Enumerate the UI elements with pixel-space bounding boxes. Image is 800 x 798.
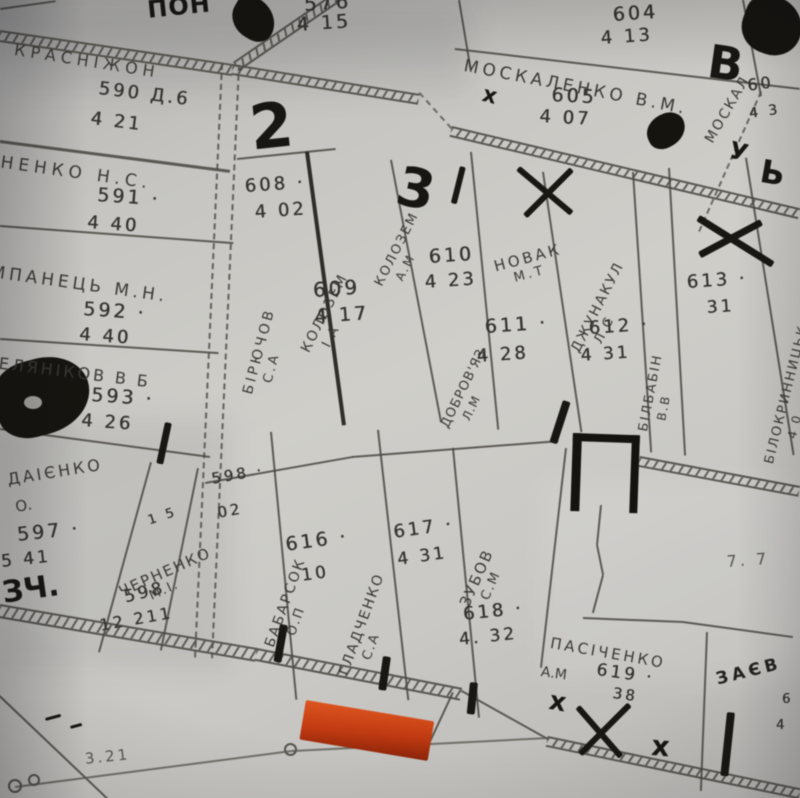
cadastral-map-photo: КРАСНІЖОН МОСКАЛЕНКО В.М. МОСКАЛ ДНЕНКО … bbox=[0, 0, 800, 798]
parcel-number: 605 bbox=[551, 84, 597, 108]
parcel-number: 597 · bbox=[16, 517, 81, 546]
parcel-number: 617 · bbox=[392, 514, 455, 543]
parcel-boundary-line bbox=[700, 632, 708, 791]
parcel-number: 591 · bbox=[96, 184, 161, 210]
parcel-number: 613 · bbox=[686, 268, 748, 293]
marker-p-symbol bbox=[570, 433, 640, 513]
parcel-number: 612 · bbox=[588, 314, 650, 339]
marker-scribble: ЗЧ. bbox=[0, 568, 61, 611]
parcel-number: 611 · bbox=[484, 312, 549, 338]
parcel-boundary-line bbox=[542, 172, 582, 432]
parcel-area: 4 3 bbox=[748, 102, 781, 122]
marker-numeral-3: 3 bbox=[391, 154, 441, 223]
parcel-owner-initials: О. bbox=[14, 495, 33, 515]
ink-blob-highlight bbox=[24, 396, 42, 409]
marker-stroke bbox=[451, 166, 466, 204]
parcel-boundary-line bbox=[352, 440, 559, 458]
distance-label: 3.21 bbox=[84, 745, 131, 768]
survey-point-circle bbox=[28, 774, 40, 786]
parcel-area: 10 bbox=[300, 562, 330, 586]
parcel-digit: 4 bbox=[776, 718, 787, 733]
survey-point-circle bbox=[284, 743, 297, 756]
parcel-number: 616 · bbox=[284, 525, 350, 556]
parcel-number: 593 · bbox=[90, 384, 155, 410]
parcel-area: 4 31 bbox=[580, 343, 631, 366]
parcel-number: 60 bbox=[746, 72, 775, 94]
parcel-area: 4 26 bbox=[81, 410, 134, 435]
parcel-digit: 6 bbox=[782, 692, 793, 707]
marker-stroke bbox=[720, 712, 735, 776]
parcel-area: 4 02 bbox=[254, 198, 307, 223]
parcel-number: 592 · bbox=[82, 298, 147, 324]
parcel-owner-label: БІРЮЧОВ С.А bbox=[240, 307, 294, 401]
parcel-area: 4 07 bbox=[539, 106, 592, 130]
parcel-area: 4 40 bbox=[87, 212, 140, 237]
parcel-owner-label: НОВАК М.Т bbox=[492, 240, 568, 290]
parcel-area: 4 17 bbox=[314, 302, 370, 328]
parcel-area: 4 23 bbox=[424, 268, 477, 293]
parcel-owner-initials: А.М bbox=[540, 664, 568, 683]
parcel-area: 4 31 bbox=[396, 543, 448, 570]
x-mark bbox=[696, 215, 774, 268]
orange-highlight-marker bbox=[299, 700, 434, 761]
chain-tick bbox=[45, 714, 61, 721]
parcel-area: 02 bbox=[216, 500, 244, 522]
map-drawing-layer: КРАСНІЖОН МОСКАЛЕНКО В.М. МОСКАЛ ДНЕНКО … bbox=[0, 0, 800, 798]
marker-letter-v: В bbox=[704, 34, 746, 92]
parcel-boundary-line bbox=[583, 617, 683, 623]
parcel-owner-label: ЗАЄВ bbox=[714, 654, 784, 690]
x-mark-small: х bbox=[547, 686, 569, 718]
parcel-boundary-line bbox=[683, 621, 793, 638]
parcel-owner-label: БІЛОКРИННИЦЬК 4 0 bbox=[762, 323, 800, 469]
parcel-owner-label: ДАІЄНКО bbox=[6, 455, 104, 489]
parcel-note: 1 5 bbox=[146, 505, 179, 528]
stream-line bbox=[592, 575, 604, 613]
parcel-owner-label: ГЛАДЧЕНКО С.А bbox=[336, 571, 403, 683]
owner-name: БІЛОКРИННИЦЬК bbox=[762, 323, 800, 466]
parcel-area: 4 21 bbox=[89, 108, 143, 135]
parcel-area: 31 bbox=[706, 296, 735, 318]
parcel-area: 4 40 bbox=[79, 324, 132, 349]
marker-stroke bbox=[549, 400, 570, 444]
parcel-area: 5 41 bbox=[0, 547, 52, 572]
x-mark-small: х bbox=[480, 82, 500, 110]
parcel-area: 4 13 bbox=[600, 24, 653, 49]
marker-letter-soft: Ь bbox=[757, 152, 788, 194]
parcel-area: 4 28 bbox=[476, 342, 529, 367]
survey-chain-line bbox=[15, 750, 294, 788]
parcel-number: 590 Д.6 bbox=[97, 78, 191, 110]
parcel-number: 609 bbox=[312, 275, 361, 302]
marker-stroke bbox=[156, 422, 172, 465]
parcel-number: 608 · bbox=[244, 172, 306, 197]
field-label: 7. 7 bbox=[726, 549, 770, 571]
parcel-boundary-line bbox=[668, 168, 686, 456]
parcel-number: 610 bbox=[428, 243, 475, 268]
parcel-number: 604 bbox=[612, 1, 659, 26]
x-mark-small: х bbox=[650, 729, 671, 763]
top-bold-label: ПОН bbox=[146, 0, 212, 24]
parcel-area: 4. 32 bbox=[458, 624, 518, 650]
parcel-area: 38 bbox=[611, 684, 638, 705]
marker-numeral-2: 2 bbox=[246, 87, 297, 164]
chain-tick bbox=[70, 723, 82, 729]
parcel-area: 4 15 bbox=[296, 10, 352, 36]
parcel-owner-label: БІЛБАБІН В.В bbox=[636, 353, 680, 436]
stream-line bbox=[596, 545, 604, 576]
parcel-boundary-line bbox=[0, 0, 56, 10]
road-connector bbox=[419, 92, 453, 129]
survey-point-circle bbox=[8, 779, 22, 793]
